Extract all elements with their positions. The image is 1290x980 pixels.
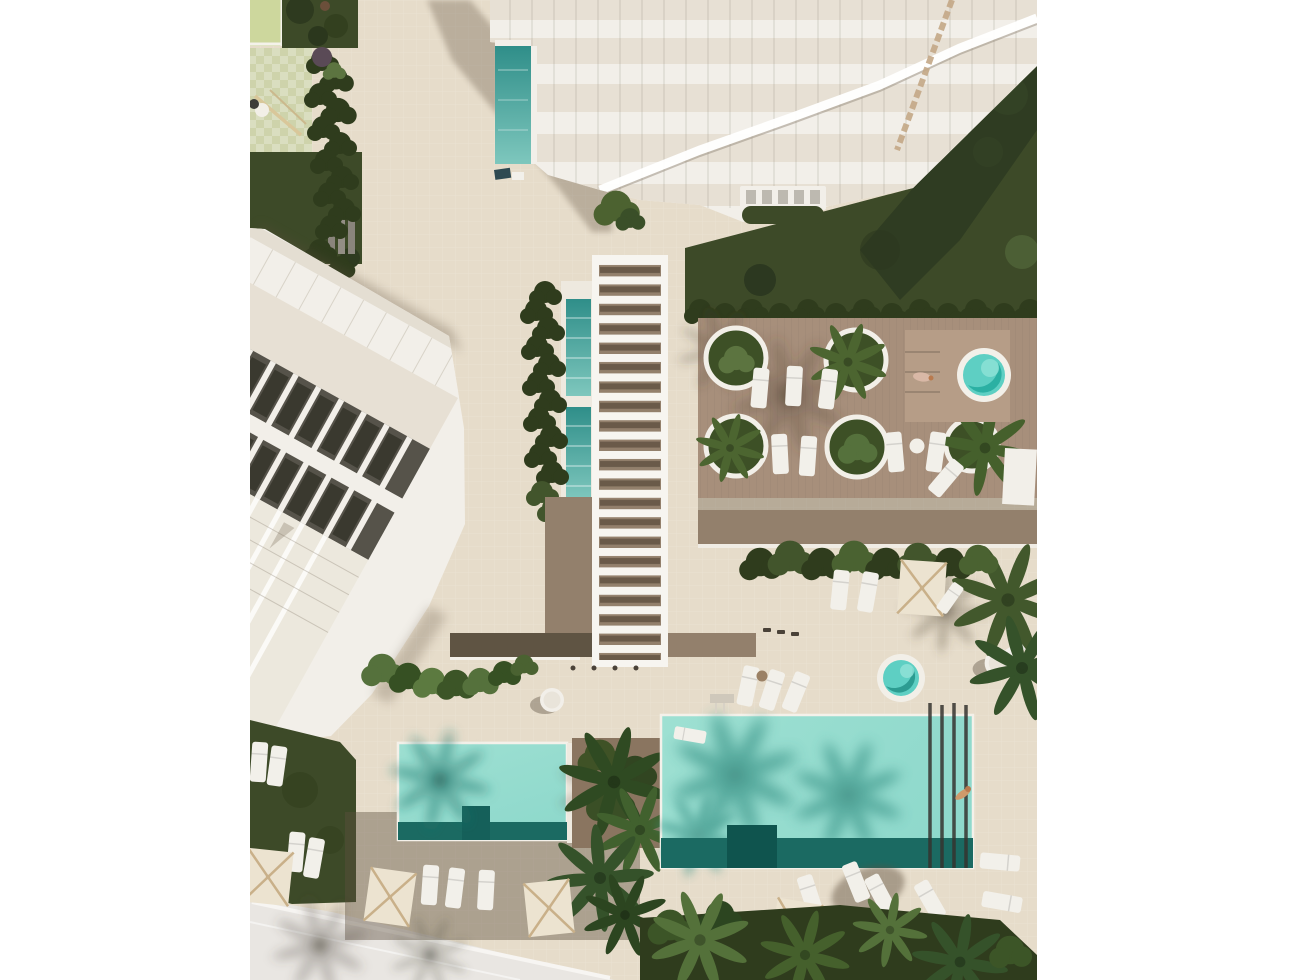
kids-canopy [250,0,282,46]
lawn-umbrella [242,848,293,907]
deck-edge-shadow [698,498,1037,510]
deck-lounger [799,435,818,476]
deck-side-table [910,439,925,454]
umbrella [363,867,416,927]
spa-pool [957,348,1011,402]
deck-planter [827,417,887,477]
umbrella [523,879,574,938]
pergola-walkway [592,255,668,667]
aerial-render [0,0,1290,980]
lap-pool-1 [566,299,591,396]
top-lawn [282,0,358,48]
deck-lounger [785,366,803,407]
playground-area [249,48,312,160]
deck-platform-slab [1002,448,1037,506]
side-table [757,671,768,682]
deck-lounger [771,434,789,475]
main-pool [639,693,973,894]
tower-balcony [740,186,826,224]
lower-boardwalk [698,510,1037,544]
lap-pool-2 [566,407,591,499]
pool-platform [727,825,777,868]
kiddie-pool [877,654,925,702]
pergola-under-deck [545,497,592,637]
tower-pool [494,40,537,180]
lawn-lounger [250,741,269,782]
purple-shrub [312,47,332,67]
balcony-lawn [742,206,824,224]
